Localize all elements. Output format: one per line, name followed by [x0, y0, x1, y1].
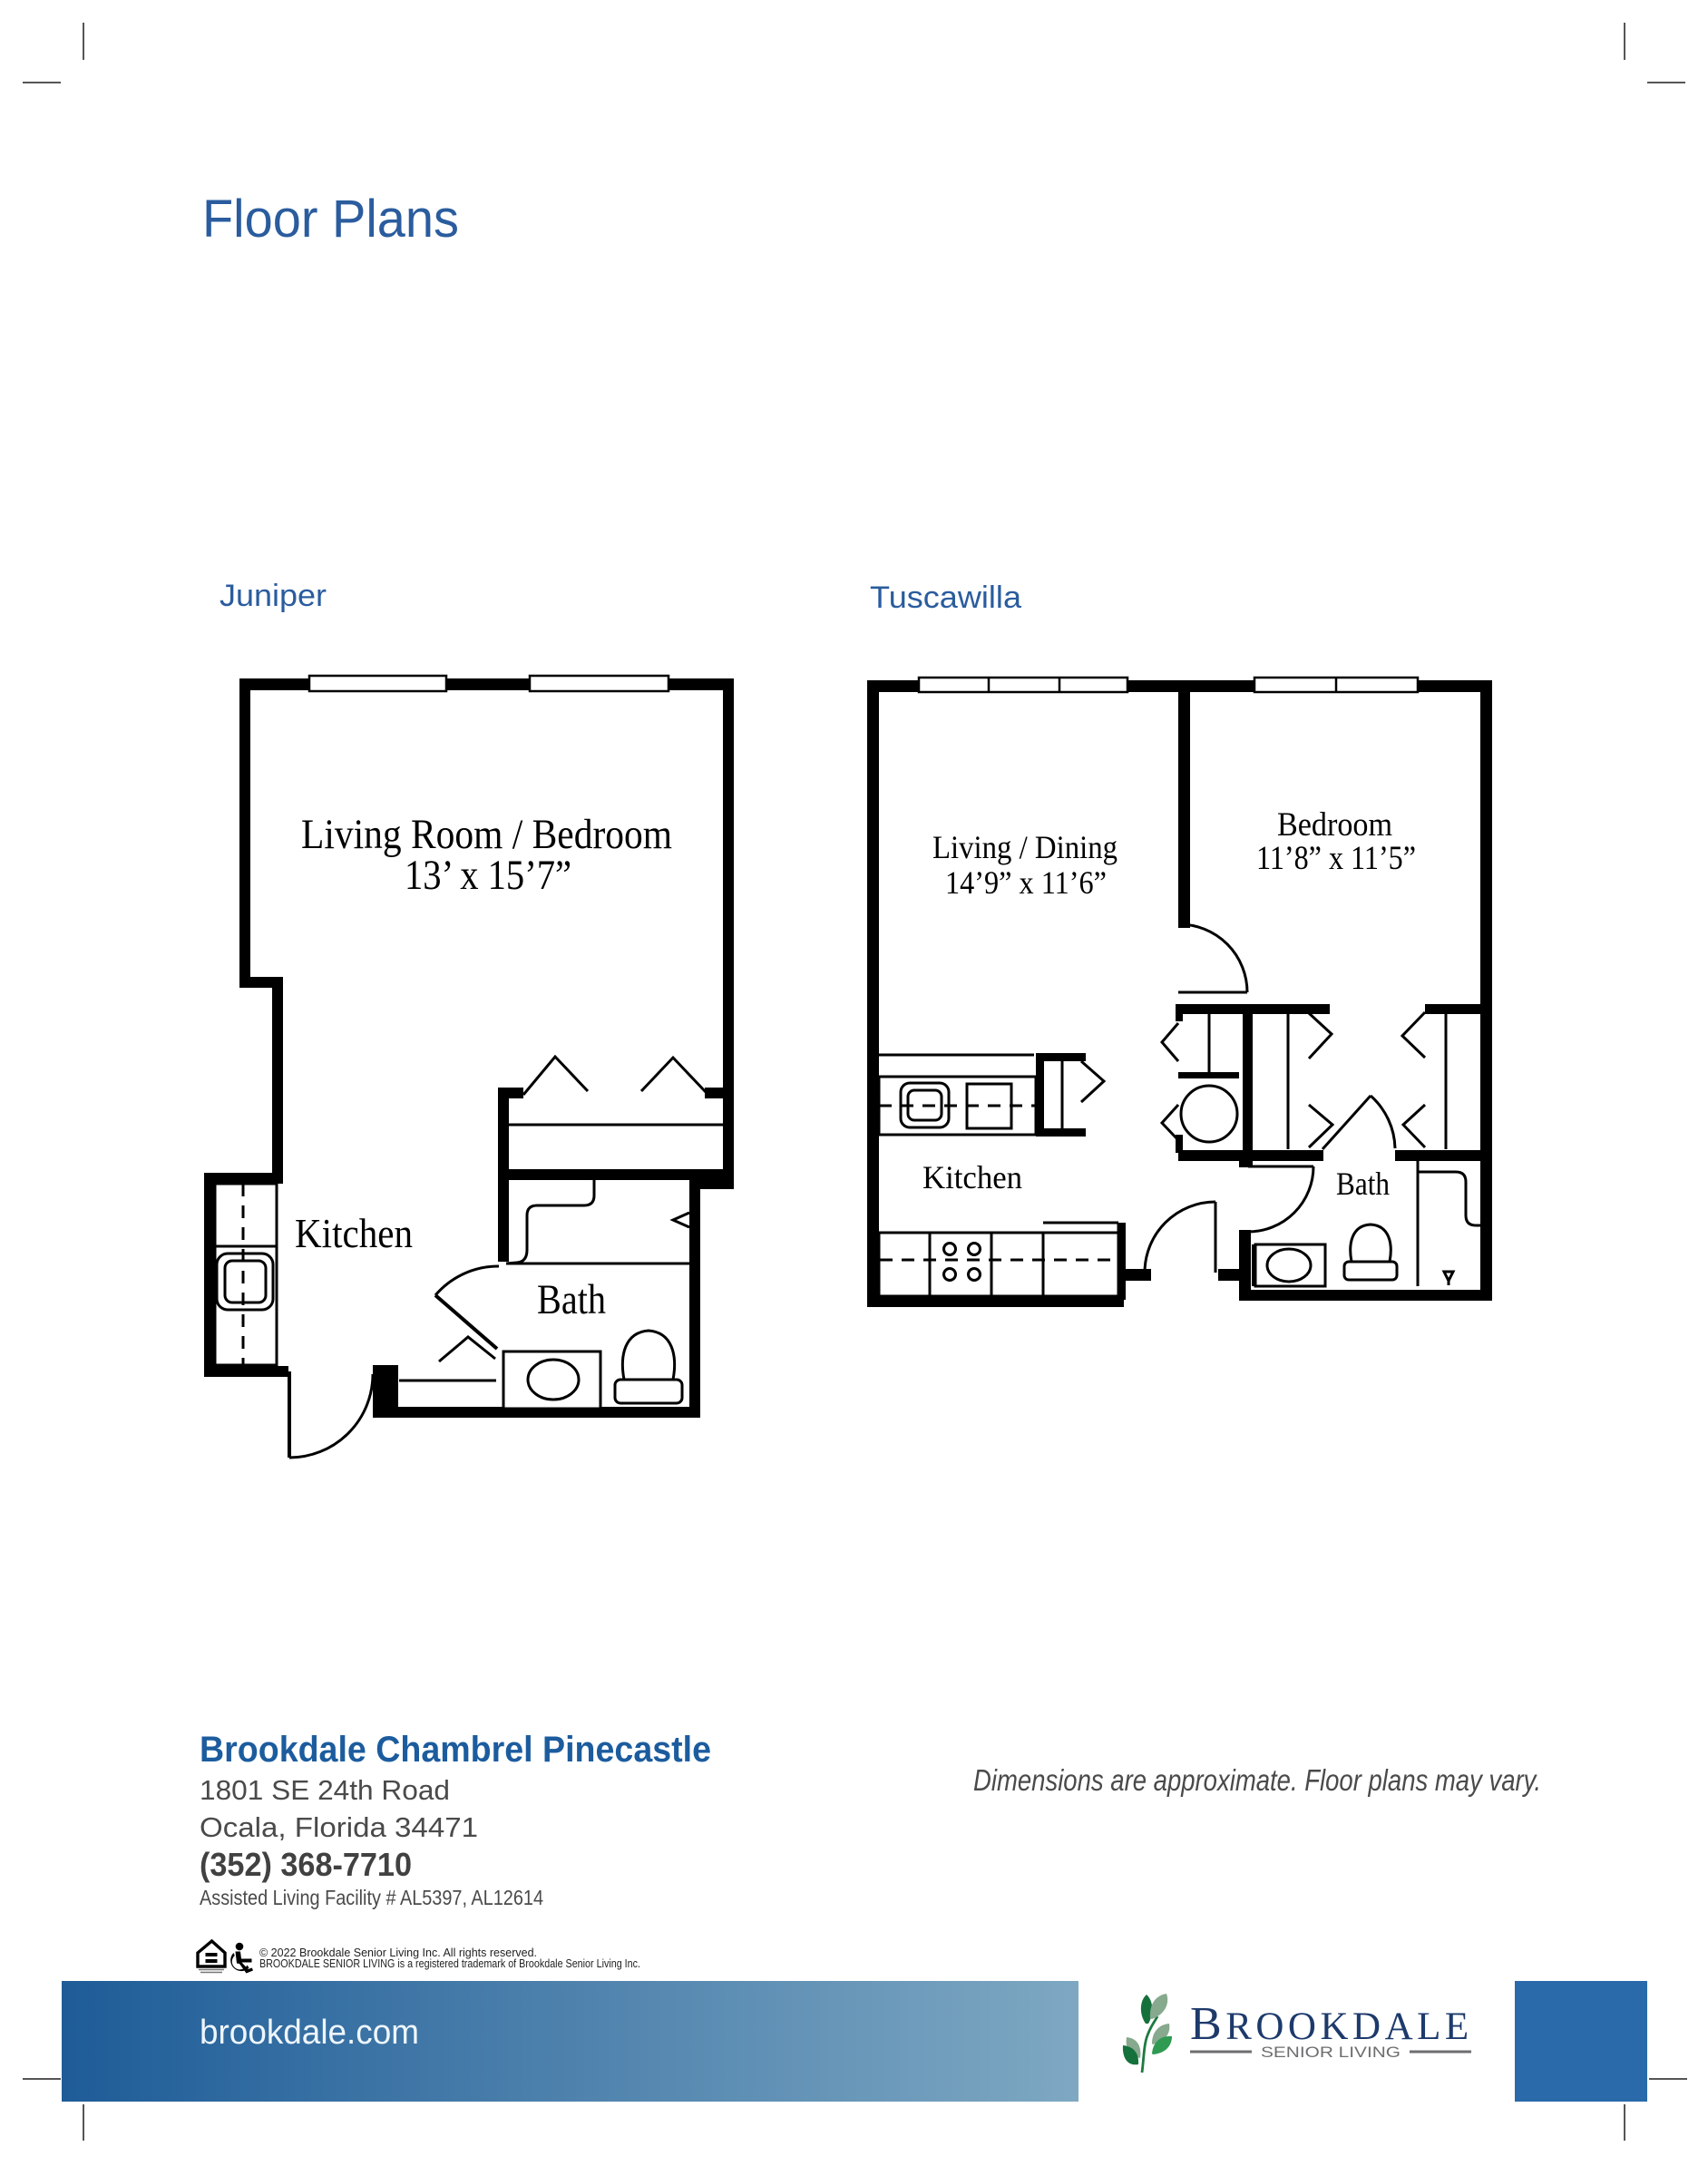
svg-text:BROOKDALE SENIOR LIVING is a r: BROOKDALE SENIOR LIVING is a registered …	[259, 1956, 640, 1970]
svg-text:(352) 368-7710: (352) 368-7710	[200, 1846, 412, 1883]
svg-text:11’8” x 11’5”: 11’8” x 11’5”	[1256, 840, 1416, 877]
svg-text:Dimensions are approximate. Fl: Dimensions are approximate. Floor plans …	[973, 1763, 1541, 1797]
svg-text:13’ x 15’7”: 13’ x 15’7”	[405, 852, 571, 899]
svg-text:Kitchen: Kitchen	[295, 1210, 413, 1256]
svg-text:Ocala, Florida 34471: Ocala, Florida 34471	[200, 1811, 478, 1843]
svg-text:brookdale.com: brookdale.com	[200, 2014, 419, 2052]
svg-text:Juniper: Juniper	[220, 579, 327, 613]
svg-text:Living / Dining: Living / Dining	[932, 829, 1118, 865]
svg-text:Tuscawilla: Tuscawilla	[870, 581, 1021, 615]
svg-text:Assisted Living Facility # AL5: Assisted Living Facility # AL5397, AL126…	[200, 1886, 543, 1909]
svg-text:14’9” x 11’6”: 14’9” x 11’6”	[945, 864, 1107, 901]
svg-text:SENIOR LIVING: SENIOR LIVING	[1261, 2044, 1401, 2061]
svg-text:1801 SE 24th Road: 1801 SE 24th Road	[200, 1774, 450, 1806]
svg-text:Bath: Bath	[1336, 1166, 1390, 1202]
svg-text:Floor Plans: Floor Plans	[202, 190, 459, 249]
svg-text:Bedroom: Bedroom	[1277, 806, 1392, 844]
svg-text:BROOKDALE: BROOKDALE	[1190, 1998, 1473, 2050]
svg-text:Brookdale Chambrel Pinecastle: Brookdale Chambrel Pinecastle	[200, 1730, 711, 1770]
svg-text:Bath: Bath	[537, 1276, 606, 1323]
svg-text:Kitchen: Kitchen	[922, 1159, 1022, 1195]
